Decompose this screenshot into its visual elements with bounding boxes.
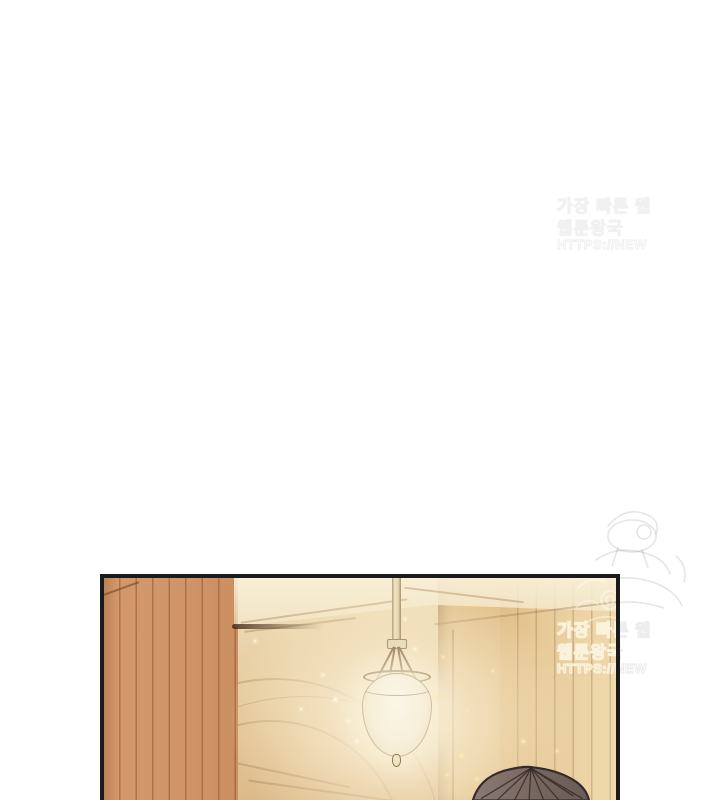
sparkle-dot: [436, 696, 439, 699]
page: 가장 빠른 웹 웹툰왕국 HTTPS://NEW 가장 빠른 웹 웹툰왕국 HT…: [0, 0, 720, 800]
comic-panel: 가장 빠른 웹 웹툰왕국 HTTPS://NEW: [100, 574, 620, 800]
watermark-line-2: 웹툰왕국: [557, 214, 624, 239]
sparkle-dot: [466, 710, 468, 712]
watermark-line-3: HTTPS://NEW: [557, 661, 620, 676]
sparkle-dot: [347, 720, 349, 722]
character-hair-top: [470, 764, 590, 800]
sparkle-dot: [446, 774, 448, 776]
watermark-line-3: HTTPS://NEW: [557, 237, 647, 252]
sparkle-dot: [522, 740, 525, 743]
sparkle-dot: [492, 670, 494, 672]
watermark-line-2: 웹툰왕국: [557, 638, 620, 663]
sparkle-dot: [334, 698, 337, 701]
sparkle-dot: [442, 656, 444, 658]
sparkle-dot: [356, 740, 358, 742]
sparkle-dot: [404, 618, 406, 620]
sparkle-dot: [322, 674, 324, 676]
sparkle-dot: [414, 648, 416, 650]
sparkle-dot: [300, 708, 302, 710]
sparkle-dot: [460, 754, 463, 757]
sparkle-dot: [556, 750, 558, 752]
sparkle-dot: [448, 728, 450, 730]
sparkle-dot: [254, 640, 256, 642]
